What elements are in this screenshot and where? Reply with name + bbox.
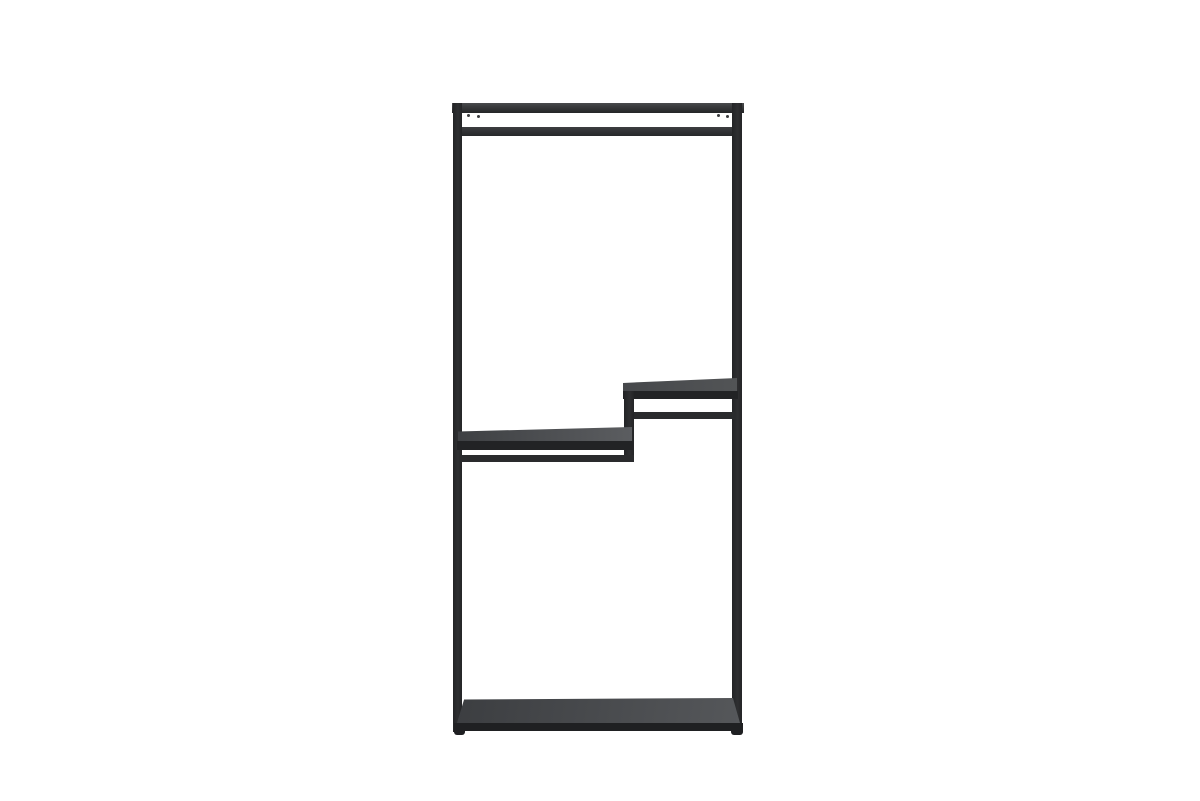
- product-photo: [0, 0, 1200, 801]
- right-foot: [731, 730, 743, 735]
- top-frame-bar: [452, 103, 744, 113]
- right-shelf-front-edge: [623, 391, 738, 399]
- left-shelf-front-edge: [457, 441, 633, 450]
- right-shelf-support-rail: [627, 412, 735, 419]
- screw-icon: [717, 114, 720, 117]
- left-foot: [454, 730, 465, 735]
- bottom-shelf-surface: [457, 698, 740, 723]
- left-frame-post: [453, 103, 462, 732]
- right-shelf-surface: [623, 378, 737, 391]
- screw-icon: [726, 115, 729, 118]
- shelf-step-post: [624, 391, 634, 462]
- left-shelf-support-rail: [460, 455, 634, 462]
- screw-icon: [467, 114, 470, 117]
- screw-icon: [477, 115, 480, 118]
- left-shelf-surface: [458, 427, 632, 441]
- hanging-rail: [462, 127, 732, 136]
- bottom-shelf-front-edge: [454, 723, 743, 731]
